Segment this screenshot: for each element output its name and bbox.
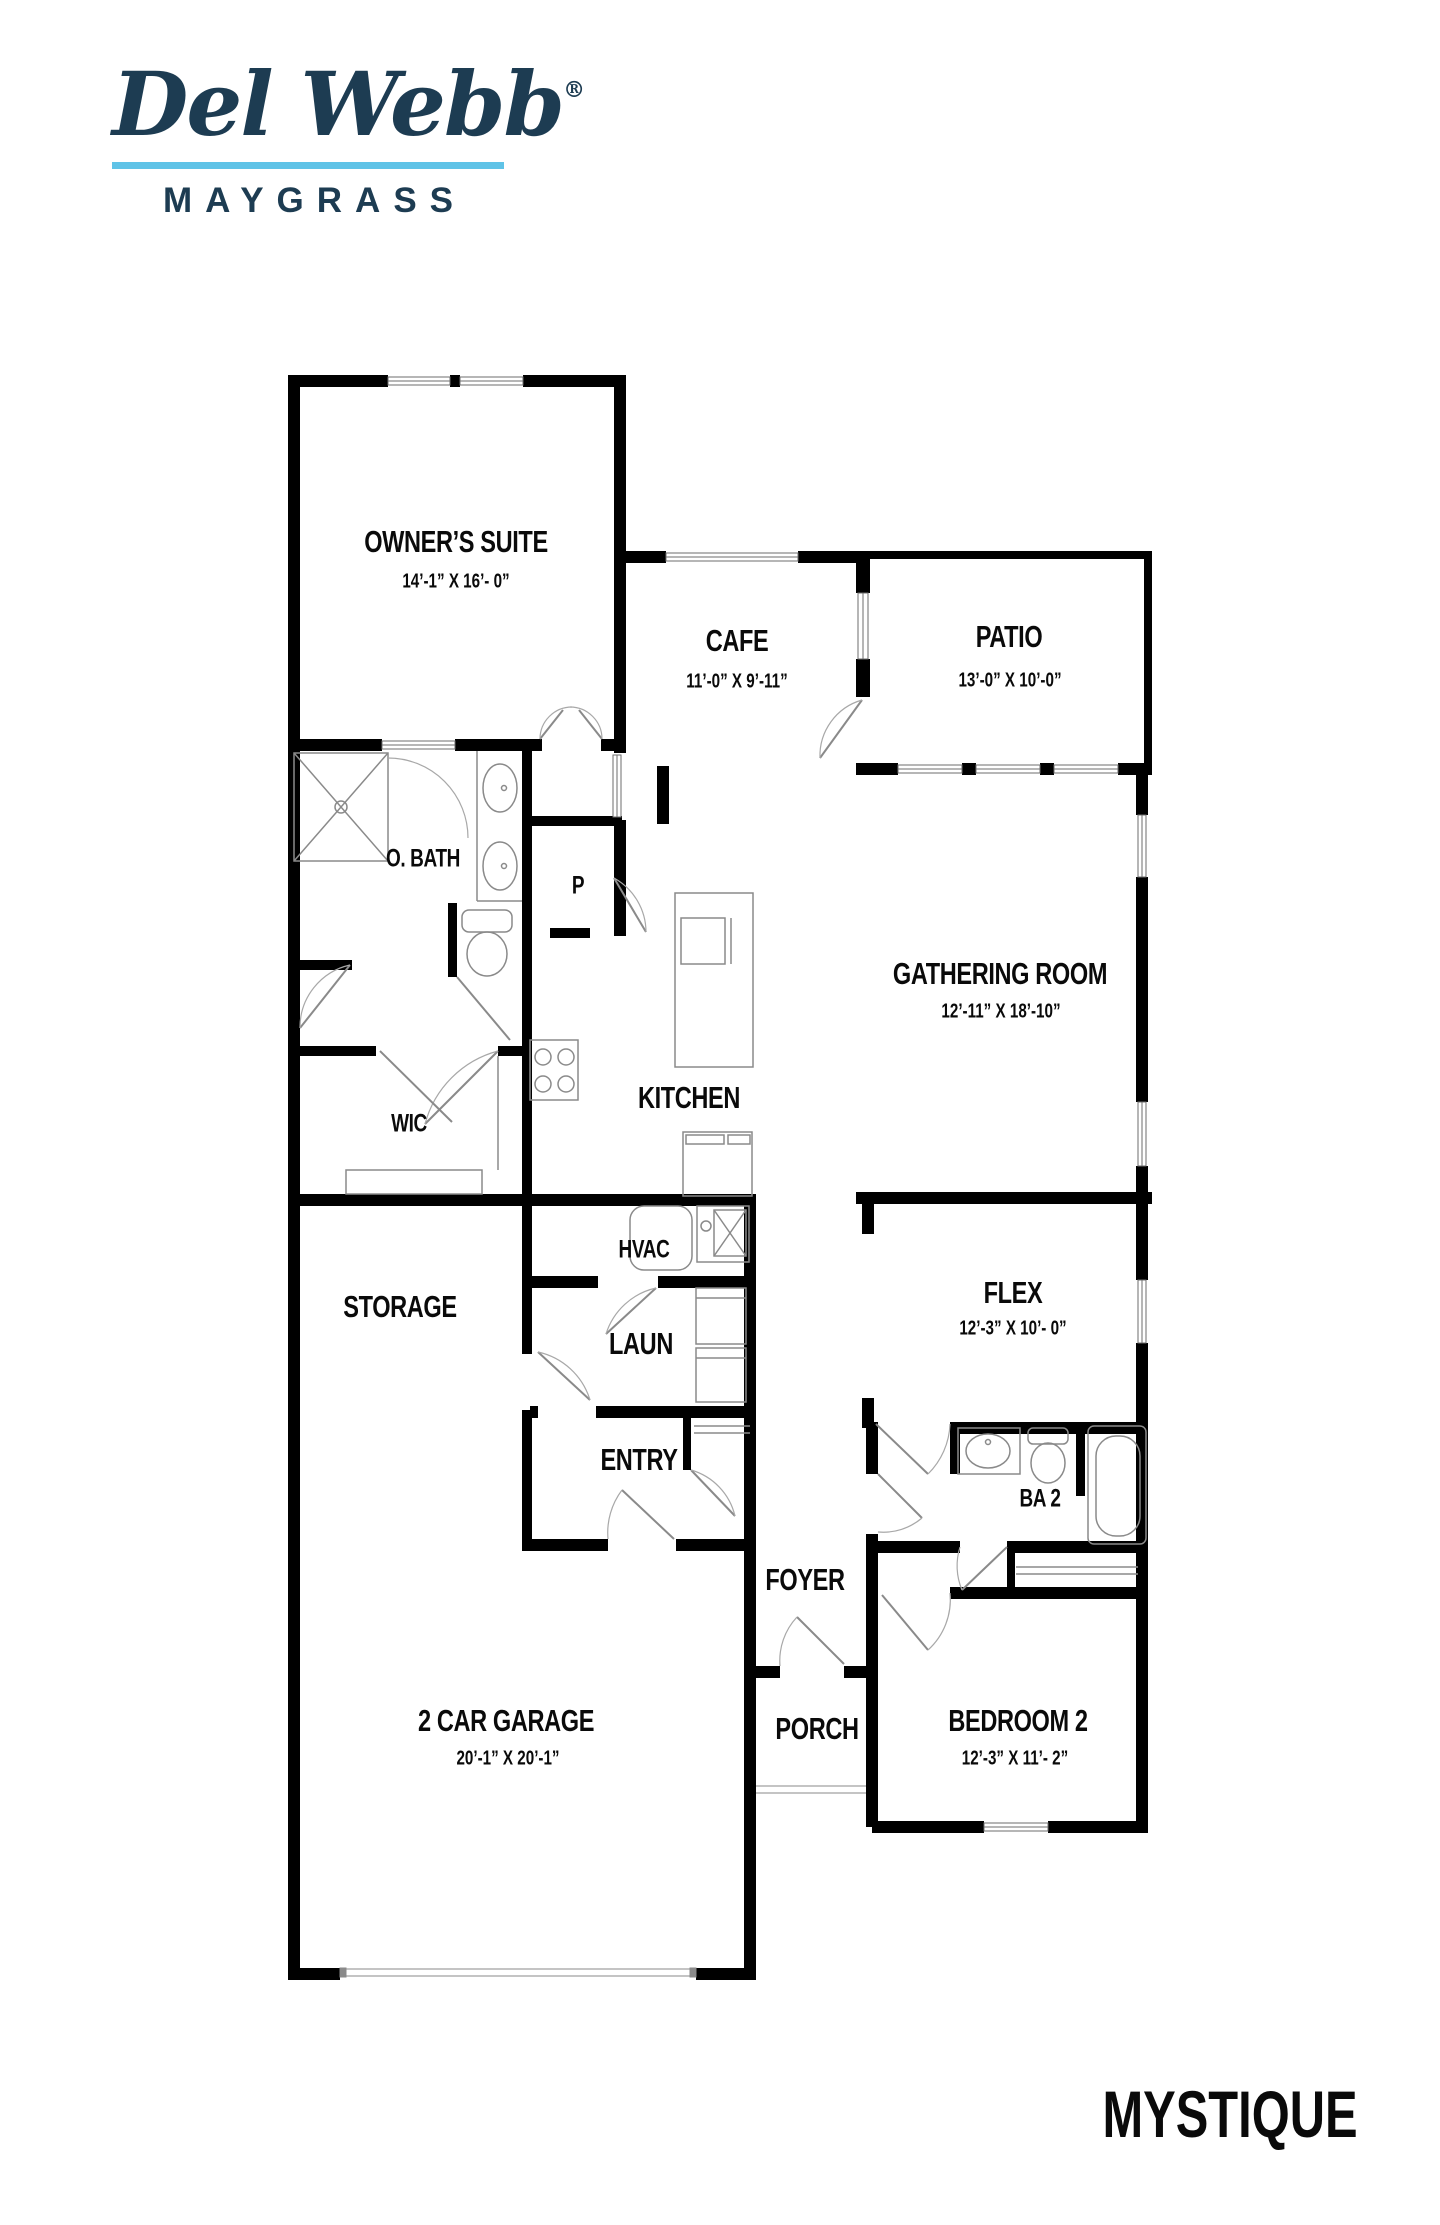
room-label-porch: PORCH bbox=[775, 1711, 858, 1747]
room-dims-flex: 12’-3” X 10’- 0” bbox=[959, 1318, 1066, 1341]
room-dims-gathering: 12’-11” X 18’-10” bbox=[941, 1001, 1060, 1024]
range-cooktop bbox=[530, 1040, 578, 1100]
room-label-pantry: P bbox=[572, 872, 584, 901]
entry-closet-shelf bbox=[694, 1426, 750, 1433]
room-label-kitchen: KITCHEN bbox=[638, 1080, 740, 1116]
room-dims-patio: 13’-0” X 10’-0” bbox=[958, 670, 1061, 693]
porch-steps bbox=[756, 1786, 866, 1793]
room-label-cafe: CAFE bbox=[706, 623, 769, 659]
plan-name: MYSTIQUE bbox=[1102, 2076, 1357, 2152]
bath-hall-door bbox=[300, 965, 350, 1028]
room-dims-cafe: 11’-0” X 9’-11” bbox=[686, 671, 787, 694]
room-label-foyer: FOYER bbox=[765, 1562, 844, 1598]
room-label-entry: ENTRY bbox=[600, 1442, 677, 1478]
kitchen-island bbox=[675, 893, 753, 1067]
windows bbox=[382, 377, 1146, 1831]
room-label-ba2: BA 2 bbox=[1019, 1485, 1060, 1514]
room-label-obath: O. BATH bbox=[386, 845, 460, 874]
room-label-patio: PATIO bbox=[976, 619, 1043, 655]
entry-closet-door bbox=[691, 1470, 735, 1516]
washer-dryer bbox=[696, 1288, 746, 1402]
flex-door bbox=[876, 1424, 950, 1474]
front-door bbox=[780, 1617, 844, 1666]
room-dims-garage: 20’-1” X 20’-1” bbox=[456, 1748, 559, 1771]
laundry-door bbox=[538, 1352, 590, 1400]
ba2-toilet bbox=[1028, 1428, 1068, 1483]
floorplan-page: Del Webb® MAYGRASS bbox=[0, 0, 1440, 2225]
entry-door bbox=[608, 1490, 674, 1539]
hall-door bbox=[878, 1474, 922, 1532]
patio-door bbox=[820, 700, 862, 758]
bedroom-door bbox=[882, 1593, 950, 1650]
fixtures bbox=[294, 751, 1146, 1977]
walls bbox=[288, 375, 1152, 1980]
room-label-owners-suite: OWNER’S SUITE bbox=[364, 524, 548, 560]
room-label-hvac: HVAC bbox=[619, 1236, 670, 1265]
ba2-door bbox=[957, 1547, 1007, 1590]
utility-sink bbox=[697, 1206, 749, 1262]
garage-door bbox=[340, 1968, 696, 1977]
owner-toilet bbox=[462, 910, 512, 976]
bedroom-closet-rod bbox=[1016, 1567, 1138, 1574]
room-label-gathering: GATHERING ROOM bbox=[893, 956, 1107, 992]
room-label-garage: 2 CAR GARAGE bbox=[418, 1703, 594, 1739]
room-label-laundry: LAUN bbox=[609, 1326, 673, 1362]
room-label-flex: FLEX bbox=[984, 1275, 1043, 1311]
room-label-bedroom2: BEDROOM 2 bbox=[948, 1703, 1087, 1739]
ba2-sink bbox=[958, 1428, 1020, 1474]
room-label-storage: STORAGE bbox=[343, 1289, 456, 1325]
kitchen-counter bbox=[683, 1132, 752, 1196]
room-dims-bedroom2: 12’-3” X 11’- 2” bbox=[962, 1748, 1068, 1771]
owner-suite-double-door bbox=[540, 707, 602, 739]
room-label-wic: WIC bbox=[391, 1110, 427, 1139]
room-dims-owners-suite: 14’-1” X 16’- 0” bbox=[402, 571, 509, 594]
vanity-sinks bbox=[477, 751, 522, 901]
toilet-room-door bbox=[457, 977, 510, 1040]
